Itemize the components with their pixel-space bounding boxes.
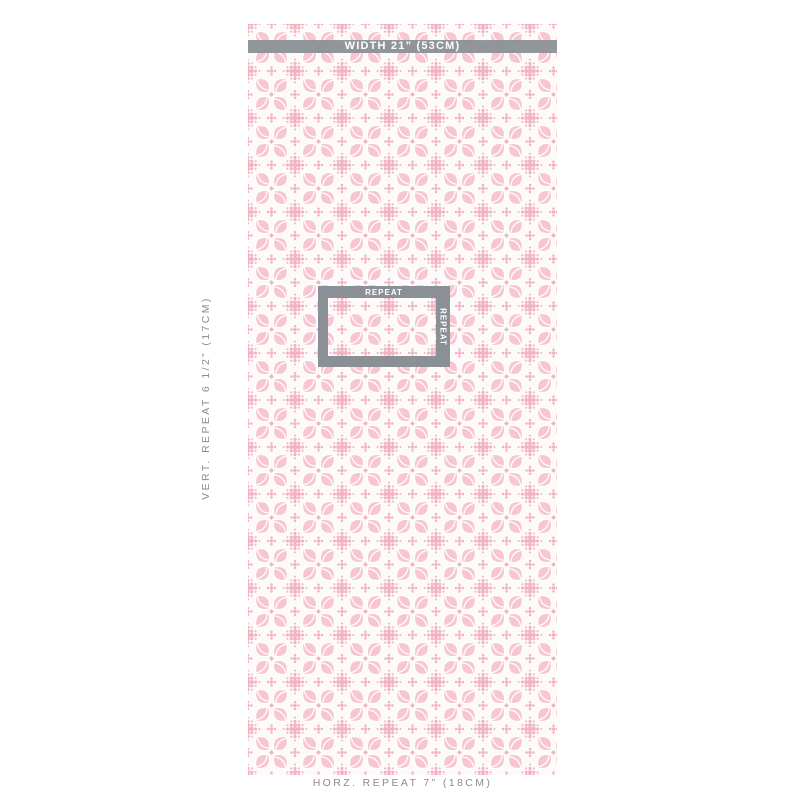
vertical-repeat-label: VERT. REPEAT 6 1/2” (17CM) — [200, 296, 212, 500]
repeat-box-side-label: REPEAT — [439, 308, 448, 346]
width-measure-label: WIDTH 21” (53CM) — [345, 40, 461, 53]
width-measure-bar: WIDTH 21” (53CM) — [248, 40, 557, 53]
wallpaper-measurement-diagram: WIDTH 21” (53CM) REPEAT REPEAT VERT. REP… — [0, 0, 800, 800]
fabric-swatch — [248, 24, 557, 775]
horizontal-repeat-label: HORZ. REPEAT 7” (18CM) — [248, 777, 557, 789]
fabric-pattern-svg — [248, 24, 557, 775]
repeat-box-top-label: REPEAT — [318, 287, 450, 299]
